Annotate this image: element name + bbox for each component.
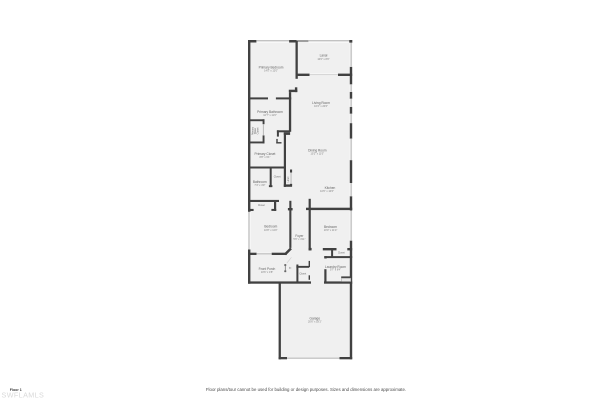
svg-text:Floor plans/tour cannot be use: Floor plans/tour cannot be used for buil… — [206, 387, 406, 392]
svg-text:Closet: Closet — [257, 127, 260, 134]
svg-text:10'6" x 4'8": 10'6" x 4'8" — [261, 271, 273, 274]
svg-text:10'8" x 11'0": 10'8" x 11'0" — [264, 229, 278, 232]
svg-text:Closet: Closet — [274, 175, 281, 178]
svg-text:10'0" x 8'0": 10'0" x 8'0" — [317, 58, 329, 61]
svg-text:16'4" x 20'6": 16'4" x 20'6" — [314, 105, 328, 108]
svg-text:10'0" x 11'4": 10'0" x 11'4" — [324, 229, 338, 232]
svg-text:7'4" x 4'9": 7'4" x 4'9" — [254, 184, 265, 187]
svg-text:10'2" x 11'0": 10'2" x 11'0" — [311, 153, 325, 156]
svg-text:8'8" x 6'1": 8'8" x 6'1" — [260, 156, 271, 159]
svg-text:Closet: Closet — [338, 251, 345, 254]
svg-text:20'6" x 18'1": 20'6" x 18'1" — [308, 320, 322, 323]
svg-text:Linen: Linen — [287, 176, 290, 183]
svg-text:5'6" x 4'11": 5'6" x 4'11" — [293, 238, 305, 241]
svg-text:Closet: Closet — [299, 273, 306, 276]
svg-text:Closet: Closet — [258, 204, 265, 207]
svg-text:14'0" x 12'0": 14'0" x 12'0" — [264, 70, 278, 73]
svg-text:10'6" x 10'6": 10'6" x 10'6" — [320, 190, 334, 193]
svg-text:10'7" x 11'0": 10'7" x 11'0" — [263, 114, 277, 117]
svg-text:SWFLAMLS: SWFLAMLS — [2, 391, 45, 400]
svg-text:5'7" x 6'4": 5'7" x 6'4" — [330, 268, 341, 271]
